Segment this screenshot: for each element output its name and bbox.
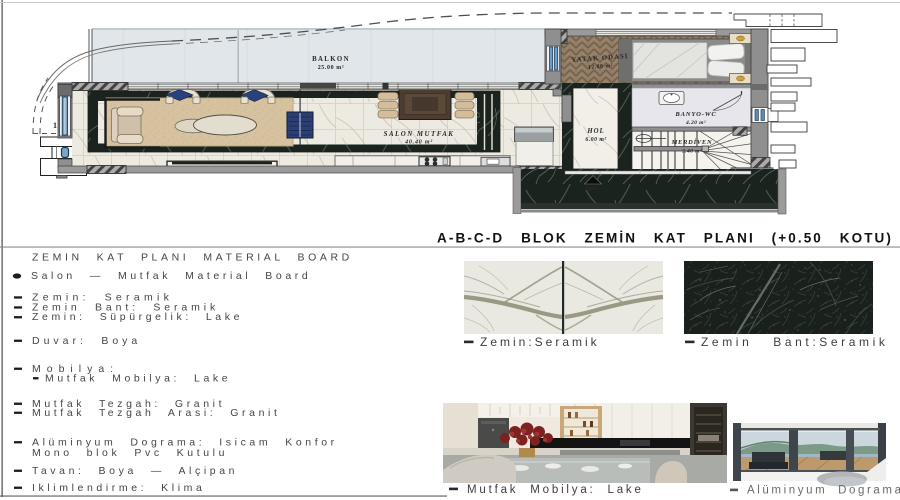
svg-text:BANYO-WC: BANYO-WC — [674, 111, 716, 118]
svg-text:Zemin:Seramik: Zemin:Seramik — [480, 335, 600, 349]
svg-text:BALKON: BALKON — [312, 56, 350, 63]
svg-text:Duvar: Boya: Duvar: Boya — [32, 335, 141, 347]
svg-text:1: 1 — [53, 121, 57, 130]
svg-text:Zemin Bant:Seramik: Zemin Bant:Seramik — [701, 335, 889, 349]
svg-text:Iklimlendirme: Klima: Iklimlendirme: Klima — [32, 482, 205, 494]
svg-text:Salon — Mutfak Material Board: Salon — Mutfak Material Board — [31, 270, 311, 282]
svg-text:SALON MUTFAK: SALON MUTFAK — [384, 131, 455, 138]
svg-text:Tavan: Boya — Alçipan: Tavan: Boya — Alçipan — [32, 465, 238, 477]
svg-text:25.00 m²: 25.00 m² — [318, 65, 345, 71]
svg-text:40.40 m²: 40.40 m² — [404, 140, 433, 146]
svg-text:Alüminyum Dograma: Alüminyum Dograma — [747, 485, 900, 497]
svg-text:Mutfak Mobilya: Lake: Mutfak Mobilya: Lake — [467, 484, 644, 496]
svg-text:Zemin: Süpürgelik: Lake: Zemin: Süpürgelik: Lake — [32, 311, 243, 323]
svg-text:ZEMIN KAT PLANI MATERIAL BOARD: ZEMIN KAT PLANI MATERIAL BOARD — [32, 252, 353, 264]
svg-text:MERDİVEN: MERDİVEN — [671, 138, 713, 146]
svg-text:6.00 m²: 6.00 m² — [585, 137, 606, 143]
svg-text:GİRİŞ: GİRİŞ — [586, 186, 599, 191]
svg-text:Mutfak Mobilya: Lake: Mutfak Mobilya: Lake — [45, 373, 231, 385]
svg-text:HOL: HOL — [586, 128, 604, 135]
svg-text:4.20 m²: 4.20 m² — [685, 120, 706, 126]
svg-text:3.40 m²: 3.40 m² — [681, 149, 702, 155]
svg-text:A-B-C-D BLOK ZEMİN KAT PLANI (: A-B-C-D BLOK ZEMİN KAT PLANI (+0.50 KOTU… — [437, 231, 893, 246]
svg-text:Mono blok Pvc Kutulu: Mono blok Pvc Kutulu — [32, 447, 228, 459]
svg-text:Mutfak Tezgah Arasi: Granit: Mutfak Tezgah Arasi: Granit — [32, 407, 280, 419]
